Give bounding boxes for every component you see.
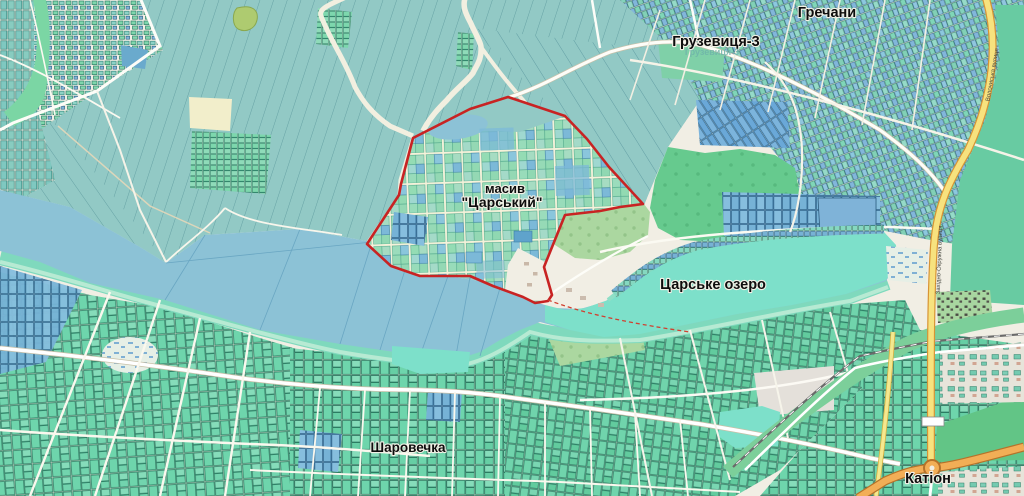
svg-text:Шаровечка: Шаровечка xyxy=(371,440,446,455)
svg-text:Грузевиця-3: Грузевиця-3 xyxy=(685,47,739,57)
svg-text:Катіон: Катіон xyxy=(905,471,951,487)
svg-text:Гречани: Гречани xyxy=(798,5,856,21)
svg-text:"Царський": "Царський" xyxy=(462,194,543,210)
svg-text:Царське озеро: Царське озеро xyxy=(660,277,766,293)
